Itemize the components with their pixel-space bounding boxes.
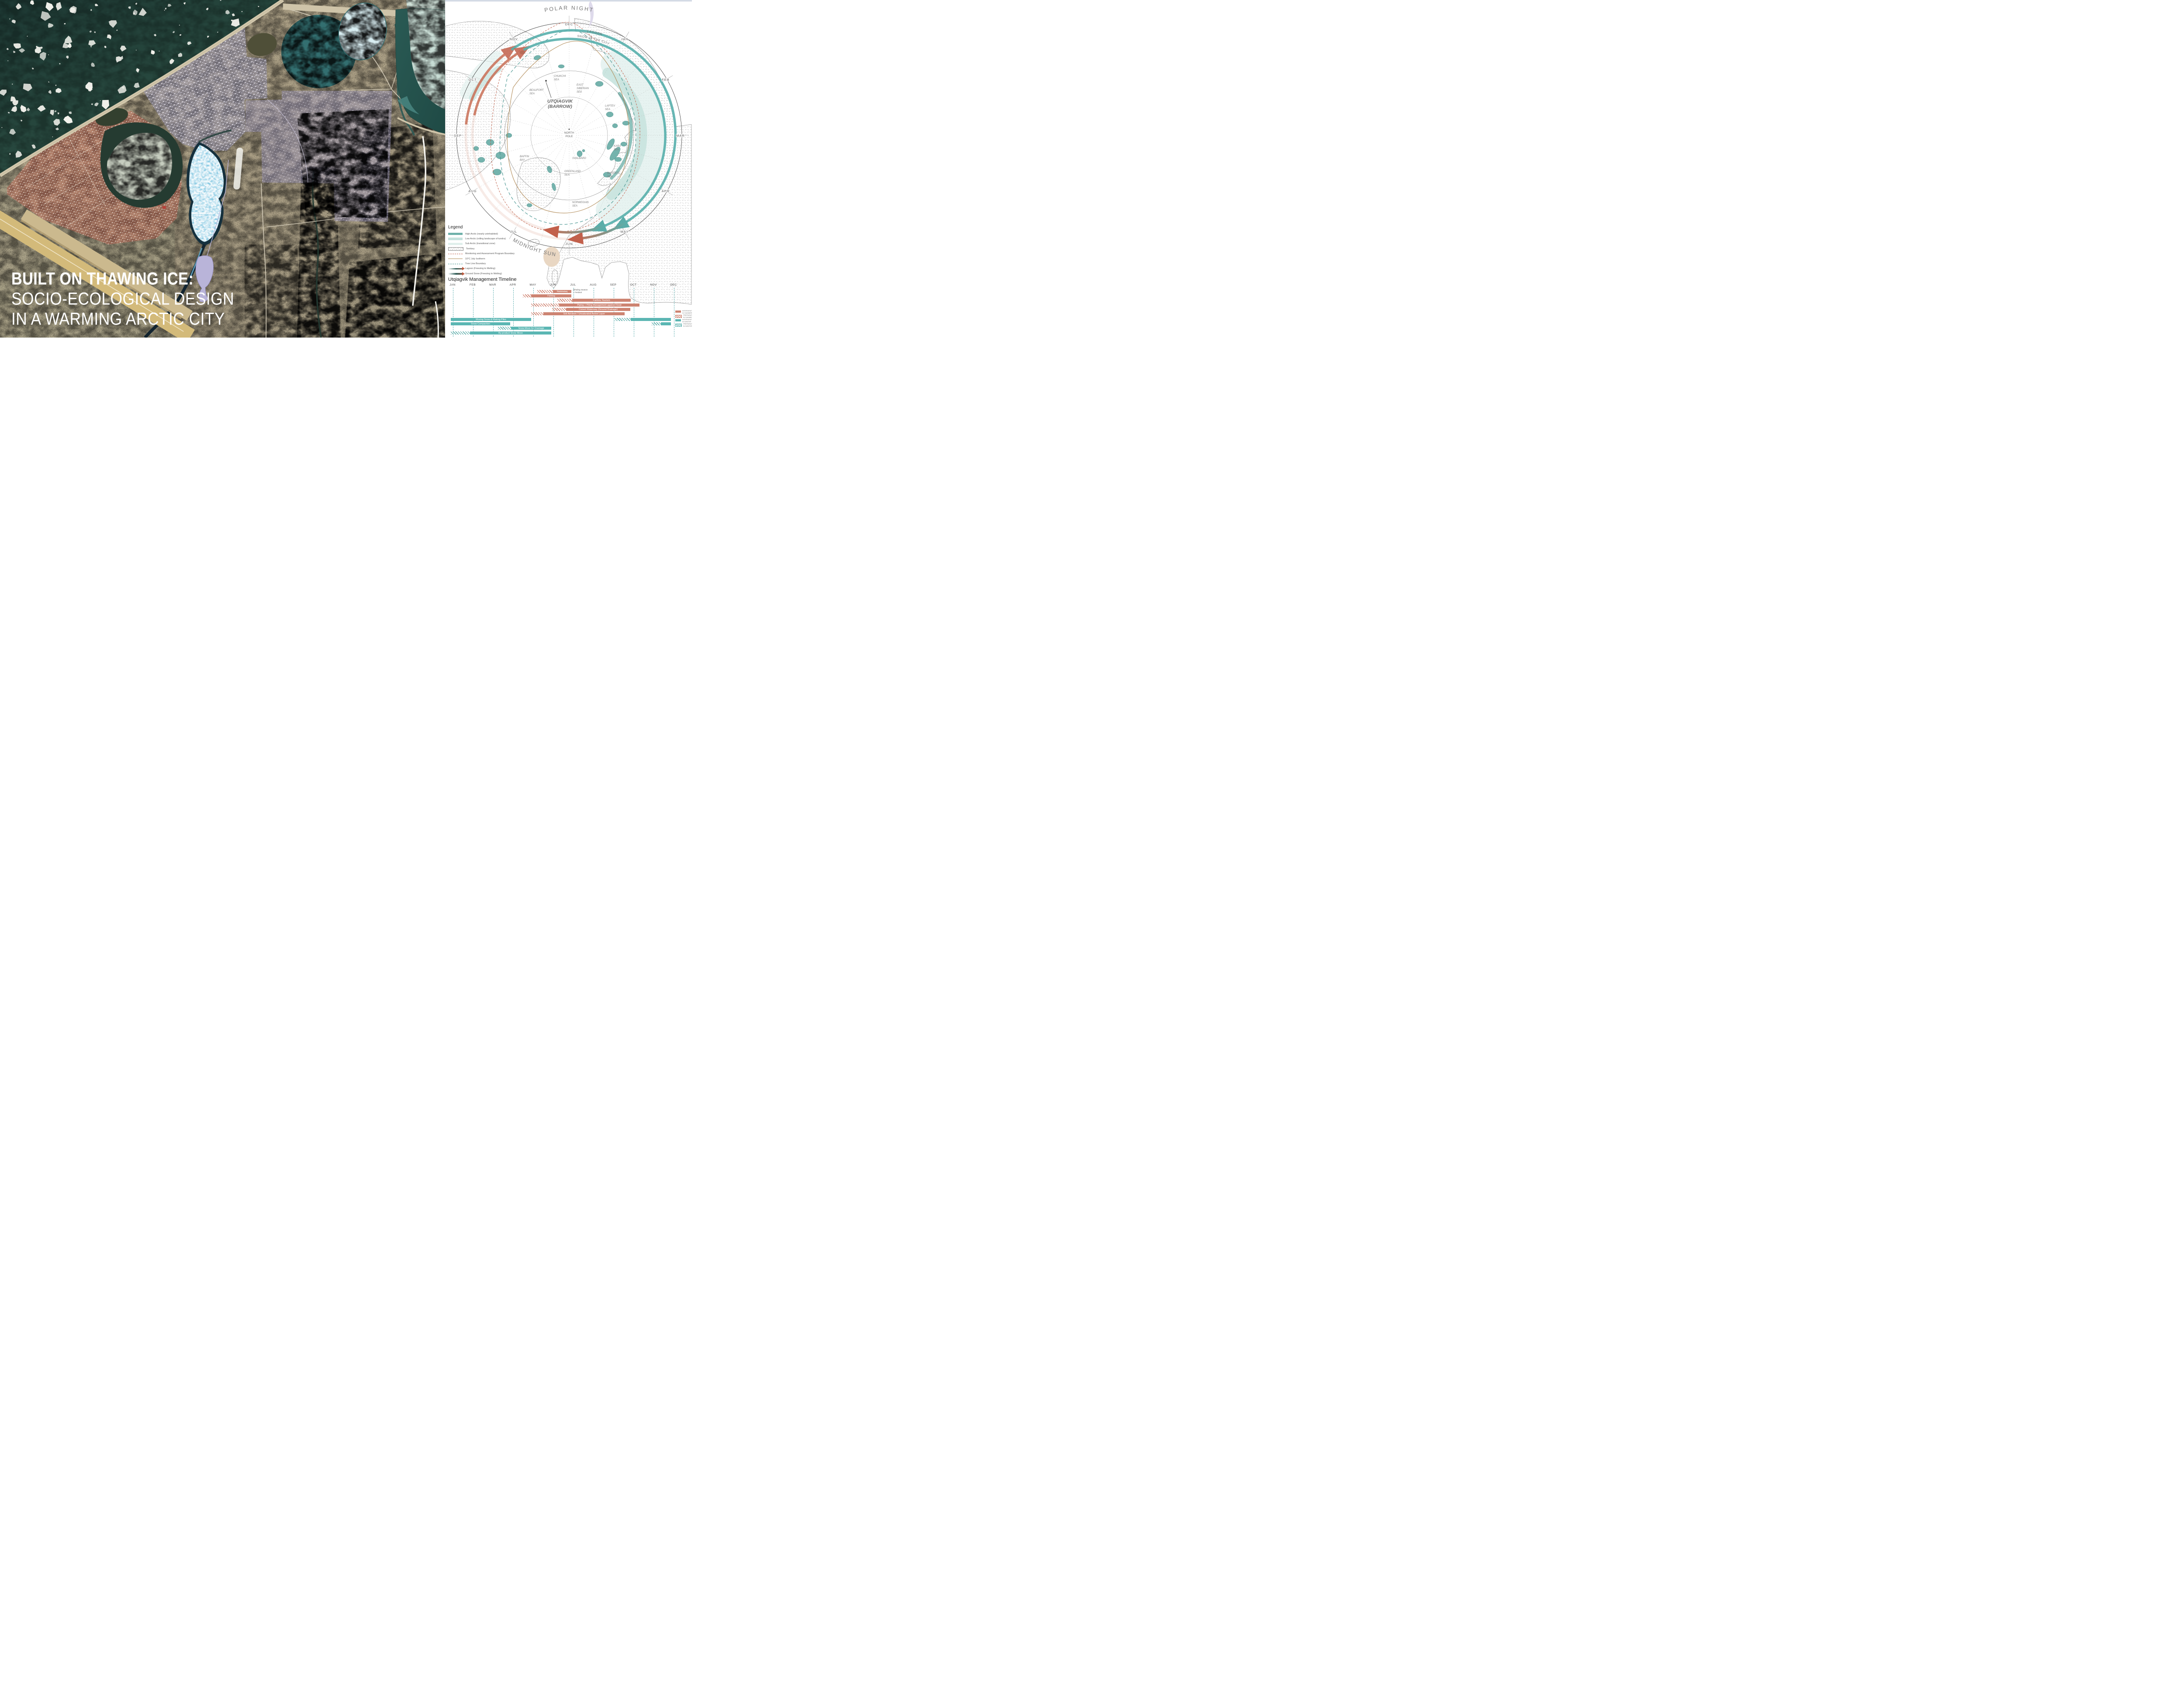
timeline-gridline [453, 288, 453, 337]
svg-text:JUN: JUN [565, 242, 573, 246]
legend-item-monitoring: Monitoring and Assessment Program Bounda… [448, 252, 529, 256]
task-bar-prep [498, 327, 511, 330]
svg-text:NORTH: NORTH [564, 131, 574, 135]
svg-text:POLE: POLE [565, 135, 573, 138]
timeline-month-dec: DEC [665, 283, 682, 286]
task-bar-prep [552, 308, 566, 311]
legend-item-isotherm: 10°C July Isotherm [448, 256, 529, 261]
svg-text:OCT: OCT [469, 78, 477, 82]
task-bar: By-product Snow Move [470, 331, 551, 335]
task-bar: Culvert Waterway (Ground Drainage) [566, 308, 630, 311]
task-bar: Piping + Piling Management against Flood [559, 304, 639, 307]
task-bar-prep [531, 304, 559, 307]
timeline-month-sep: SEP [605, 283, 622, 286]
summer-hatch-swatch [675, 315, 682, 318]
svg-text:NOV: NOV [509, 37, 518, 41]
legend-item-lagoon-arrow: Lagoon (Freezing to Melting) [448, 266, 529, 271]
poster-title-line2: SOCIO-ECOLOGICAL DESIGN [11, 290, 234, 309]
svg-text:UTQIAGVIK: UTQIAGVIK [547, 99, 574, 104]
legend-item-sub-arctic: Sub Arctic (transitional zone) [448, 241, 529, 246]
task-bar-prep [652, 322, 661, 325]
timeline-month-jun: JUN [544, 283, 562, 286]
svg-text:(BARROW): (BARROW) [548, 104, 572, 109]
svg-text:MAR: MAR [676, 134, 685, 138]
poster-board: BUILT ON THAWING ICE: SOCIO-ECOLOGICAL D… [0, 0, 692, 338]
timeline-month-aug: AUG [584, 283, 602, 286]
svg-text:AUG: AUG [468, 189, 477, 193]
timeline-month-apr: APR [504, 283, 522, 286]
territory-swatch [448, 247, 463, 251]
task-bar: Caribou Tourism [572, 299, 631, 302]
task-bar-prep [537, 290, 553, 293]
task-bar-prep [615, 318, 631, 321]
svg-text:APR: APR [662, 189, 670, 193]
task-bar-prep [523, 294, 531, 297]
task-bar: Soil Aeration / Unsaturated Active Layer [543, 312, 625, 315]
svg-text:SVALBARD: SVALBARD [572, 157, 586, 160]
timeline-gridline [674, 288, 674, 337]
poster-title-line1: BUILT ON THAWING ICE: [11, 269, 194, 289]
timeline-legend-intervention-summer: INTERVENTIONIN SUMMER [675, 310, 692, 314]
timeline-month-jan: JAN [444, 283, 461, 286]
task-bar-prep [451, 331, 470, 335]
task-bar: Fishing [531, 294, 571, 297]
legend-item-low-arctic: Low Arctic (rolling landscape of tundra) [448, 236, 529, 241]
timeline-month-jul: JUL [564, 283, 582, 286]
timeline-gridline [634, 288, 634, 337]
timeline-month-oct: OCT [625, 283, 642, 286]
winter-solid-swatch [675, 319, 681, 321]
timeline-gridline [493, 288, 494, 337]
isotherm-line-swatch [448, 259, 463, 259]
task-bar-prep [557, 299, 572, 302]
task-bar-second [661, 322, 671, 325]
poster-title-line3: IN A WARMING ARCTIC CITY [11, 310, 225, 329]
high-arctic-swatch [448, 233, 463, 235]
winter-hatch-swatch [675, 324, 682, 327]
svg-text:SEP: SEP [454, 134, 462, 138]
timeline-month-may: MAY [524, 283, 542, 286]
summer-solid-swatch [675, 310, 681, 313]
whaling-note: Whaling Season+ Festival [573, 289, 587, 294]
timeline-title: Utqiagvik Management Timeline [448, 277, 517, 282]
map-legend: Legend High Arctic (nearly uninhabited) … [448, 225, 529, 276]
legend-item-groundsnow-arrow: Ground Snow (Freezing to Melting) [448, 271, 529, 276]
legend-item-high-arctic: High Arctic (nearly uninhabited) [448, 231, 529, 236]
legend-item-territory: Territory [448, 246, 529, 251]
legend-item-treeline: Tree Line Boundary [448, 261, 529, 266]
timeline-month-nov: NOV [645, 283, 662, 286]
svg-text:JAN: JAN [621, 37, 628, 41]
timeline-month-feb: FEB [464, 283, 481, 286]
task-bar: Snow Compaction [451, 322, 510, 325]
monitoring-line-swatch [448, 254, 463, 254]
polar-season-diagram: POLAR NIGHT MIDNIGHT SUN LAGOON SNOW IN … [445, 0, 692, 338]
timeline-gridline [654, 288, 654, 337]
board-edge-sliver [445, 0, 692, 2]
timeline-legend-intervention-winter: INTERVENTIONIN WINTER [675, 319, 692, 323]
timeline-gridline [473, 288, 473, 337]
lagoon-gradient-arrow-icon [448, 268, 463, 270]
timeline-legend-preparation-winter: PREPARATIONIN WINTER [675, 323, 692, 327]
task-bar: Moving Snow & Making Piles [451, 318, 531, 321]
svg-text:MAY: MAY [621, 230, 629, 234]
svg-text:DEC: DEC [565, 22, 574, 26]
task-bar-second [631, 318, 671, 321]
treeline-swatch [448, 264, 463, 264]
svg-text:FEB: FEB [662, 78, 670, 82]
task-bar-prep [531, 312, 543, 315]
timeline-legend-preparation-summer: PREPARATIONIN SUMMER [675, 314, 692, 318]
timeline-month-mar: MAR [484, 283, 501, 286]
groundsnow-gradient-arrow-icon [448, 273, 463, 275]
task-bar: Snow Move for Drainage [511, 327, 551, 330]
task-bar: Nalukataq [553, 290, 571, 293]
low-arctic-swatch [448, 238, 463, 240]
legend-title: Legend [448, 225, 529, 230]
sub-arctic-swatch [448, 243, 463, 245]
